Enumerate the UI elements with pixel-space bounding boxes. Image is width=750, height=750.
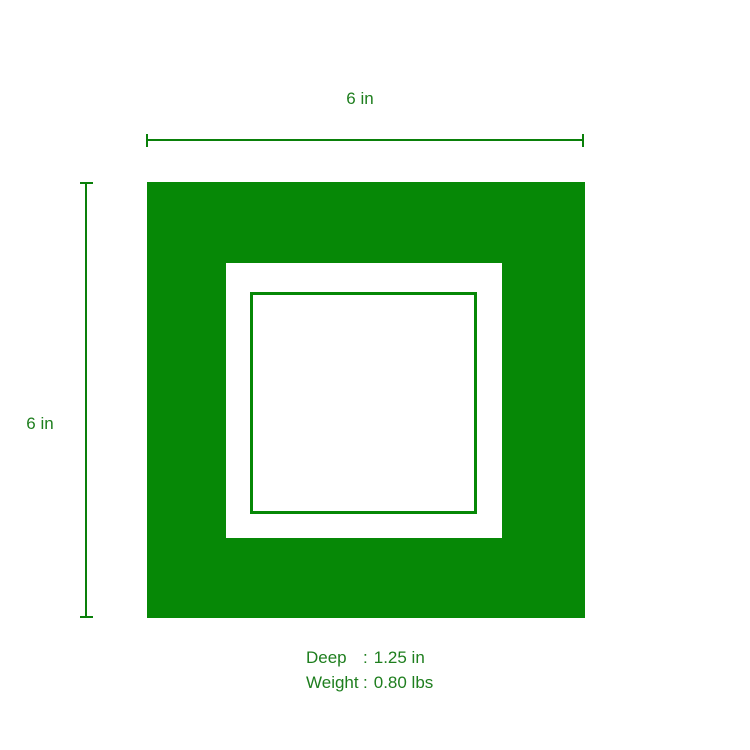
product-inner-outline-square <box>250 292 477 514</box>
side-dimension-line <box>85 183 87 617</box>
side-dimension-tick-bottom <box>80 616 93 618</box>
spec-row-weight: Weight : 0.80 lbs <box>306 670 433 695</box>
product-dimension-diagram: 6 in 6 in Deep : 1.25 in Weight : 0.80 l… <box>0 0 750 750</box>
product-outer-square <box>147 182 585 618</box>
top-dimension-label: 6 in <box>325 89 395 109</box>
product-specs: Deep : 1.25 in Weight : 0.80 lbs <box>306 645 433 695</box>
top-dimension-tick-left <box>146 134 148 147</box>
top-dimension-tick-right <box>582 134 584 147</box>
side-dimension-tick-top <box>80 182 93 184</box>
product-inner-well <box>226 263 502 538</box>
side-dimension-label: 6 in <box>16 414 64 434</box>
spec-row-deep: Deep : 1.25 in <box>306 645 433 670</box>
top-dimension-line <box>147 139 583 141</box>
spec-label: Deep <box>306 645 363 670</box>
spec-label: Weight <box>306 670 363 695</box>
spec-separator: : <box>363 670 368 695</box>
spec-value: 1.25 in <box>374 645 425 670</box>
spec-separator: : <box>363 645 368 670</box>
spec-value: 0.80 lbs <box>374 670 434 695</box>
